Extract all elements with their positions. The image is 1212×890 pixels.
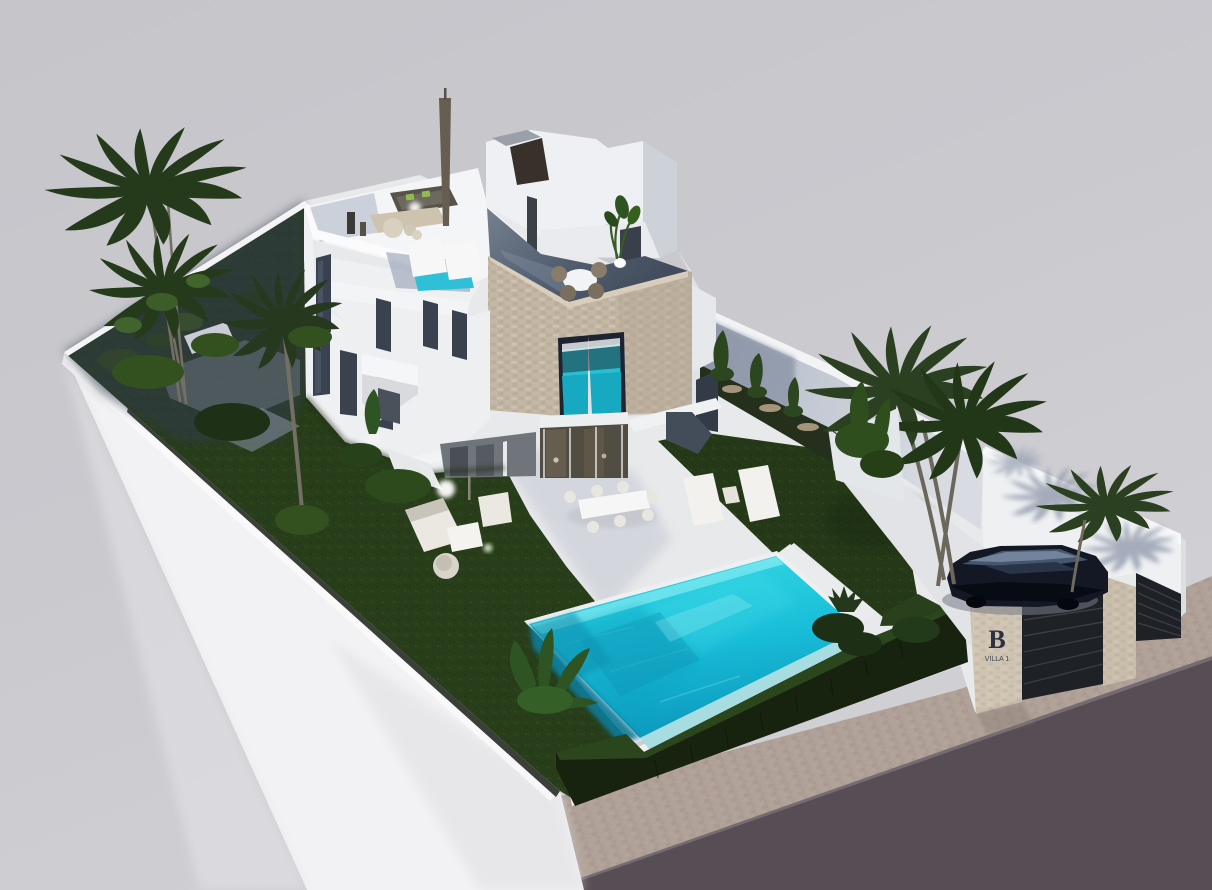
svg-text:B: B [988,625,1005,654]
svg-text:VILLA 1: VILLA 1 [985,656,1010,663]
